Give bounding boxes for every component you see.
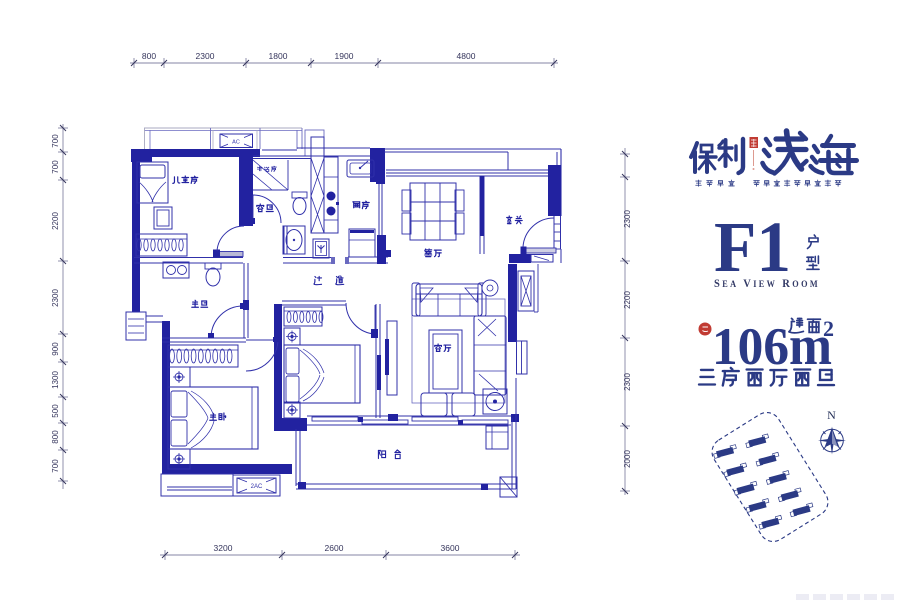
svg-text:1900: 1900 xyxy=(335,51,354,61)
svg-text:4800: 4800 xyxy=(457,51,476,61)
svg-text:2000: 2000 xyxy=(623,450,632,468)
svg-text:700: 700 xyxy=(51,160,60,174)
svg-text:F1: F1 xyxy=(714,207,791,287)
svg-text:800: 800 xyxy=(142,51,156,61)
svg-text:2300: 2300 xyxy=(623,373,632,391)
svg-text:2300: 2300 xyxy=(51,289,60,307)
svg-text:800: 800 xyxy=(51,430,60,444)
svg-text:2AC: 2AC xyxy=(251,484,263,490)
svg-text:2600: 2600 xyxy=(325,543,344,553)
svg-text:SEA VIEW ROOM: SEA VIEW ROOM xyxy=(714,278,820,290)
svg-text:AC: AC xyxy=(232,140,240,146)
svg-text:2200: 2200 xyxy=(623,291,632,309)
svg-text:2200: 2200 xyxy=(51,212,60,230)
svg-text:2300: 2300 xyxy=(196,51,215,61)
svg-text:106: 106 xyxy=(712,318,789,376)
svg-text:500: 500 xyxy=(51,404,60,418)
svg-text:3600: 3600 xyxy=(441,543,460,553)
svg-text:900: 900 xyxy=(51,342,60,356)
svg-text:N: N xyxy=(827,408,836,422)
svg-text:1800: 1800 xyxy=(269,51,288,61)
svg-text:700: 700 xyxy=(51,134,60,148)
svg-text:2: 2 xyxy=(823,316,834,341)
svg-text:3200: 3200 xyxy=(214,543,233,553)
svg-text:2300: 2300 xyxy=(623,210,632,228)
svg-text:1300: 1300 xyxy=(51,371,60,389)
svg-text:700: 700 xyxy=(51,459,60,473)
